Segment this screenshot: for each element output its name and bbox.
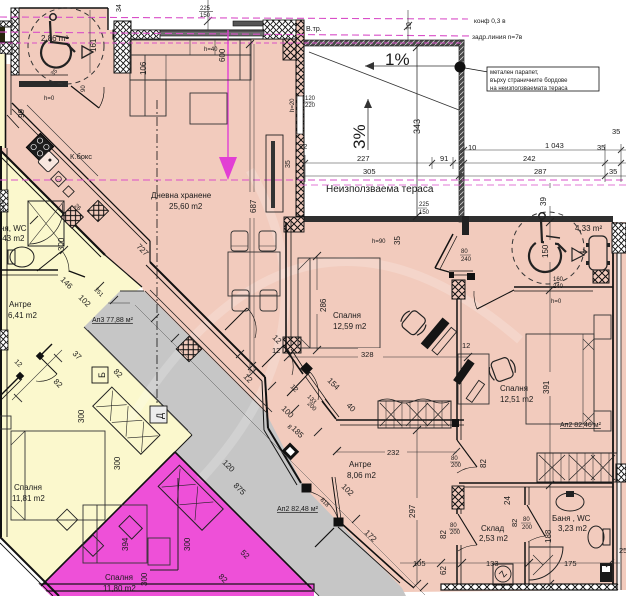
svg-text:Ап2 82,46 м²: Ап2 82,46 м² — [560, 422, 602, 429]
svg-text:175: 175 — [564, 559, 577, 568]
svg-text:Склад: Склад — [481, 524, 504, 533]
svg-text:210: 210 — [0, 200, 6, 212]
svg-text:300: 300 — [183, 537, 192, 551]
svg-text:Д: Д — [155, 413, 165, 419]
svg-text:99: 99 — [17, 109, 26, 118]
svg-text:232: 232 — [387, 448, 400, 457]
svg-text:35: 35 — [285, 160, 292, 168]
svg-text:80: 80 — [450, 523, 457, 529]
svg-text:150: 150 — [541, 244, 550, 258]
svg-text:242: 242 — [523, 154, 536, 163]
svg-text:188: 188 — [544, 529, 553, 543]
svg-text:82: 82 — [439, 530, 448, 539]
svg-text:8,06 m2: 8,06 m2 — [347, 471, 376, 480]
svg-text:К.бокс: К.бокс — [70, 152, 92, 161]
svg-text:687: 687 — [249, 199, 258, 213]
svg-text:200: 200 — [522, 525, 533, 531]
svg-text:82: 82 — [510, 519, 519, 527]
svg-text:161: 161 — [89, 38, 98, 52]
svg-text:240: 240 — [461, 257, 472, 263]
svg-text:10: 10 — [468, 143, 476, 152]
svg-text:Антре: Антре — [9, 300, 32, 309]
svg-text:35: 35 — [597, 143, 605, 152]
svg-text:300: 300 — [140, 572, 149, 586]
svg-text:80: 80 — [451, 456, 458, 462]
svg-text:1%: 1% — [385, 50, 410, 69]
svg-text:300: 300 — [113, 456, 122, 470]
svg-text:286: 286 — [319, 298, 328, 312]
svg-text:35: 35 — [612, 127, 620, 136]
svg-text:Ап2 82,48 м²: Ап2 82,48 м² — [277, 506, 319, 513]
svg-text:34: 34 — [116, 4, 123, 12]
svg-text:h=90: h=90 — [372, 239, 386, 245]
svg-text:,43 m2: ,43 m2 — [0, 234, 25, 243]
svg-text:160: 160 — [553, 277, 564, 283]
svg-text:Неизползваема тераса: Неизползваема тераса — [326, 184, 434, 195]
svg-text:Антре: Антре — [349, 460, 372, 469]
svg-text:25: 25 — [619, 546, 626, 555]
svg-text:4,33 m²: 4,33 m² — [575, 224, 602, 233]
svg-text:200: 200 — [450, 530, 461, 536]
svg-text:394: 394 — [121, 537, 130, 551]
svg-text:задр.линия n=7в: задр.линия n=7в — [472, 34, 523, 41]
svg-text:90: 90 — [81, 85, 87, 92]
svg-text:3,23 m2: 3,23 m2 — [558, 524, 587, 533]
svg-text:Ап3 77,88 м²: Ап3 77,88 м² — [92, 317, 134, 324]
svg-text:297: 297 — [408, 504, 417, 518]
svg-text:25,60 m2: 25,60 m2 — [169, 202, 203, 211]
svg-text:300: 300 — [77, 409, 86, 423]
svg-text:24: 24 — [503, 496, 512, 505]
svg-text:39: 39 — [539, 197, 548, 206]
svg-text:Баня , WC: Баня , WC — [552, 514, 591, 523]
svg-text:Дневна хранене: Дневна хранене — [151, 191, 212, 200]
svg-text:12,59 m2: 12,59 m2 — [333, 322, 367, 331]
svg-text:Б: Б — [97, 372, 107, 378]
svg-text:22: 22 — [299, 142, 307, 151]
svg-text:2,53 m2: 2,53 m2 — [479, 534, 508, 543]
svg-text:на неизползваемата тераса: на неизползваемата тераса — [490, 86, 568, 92]
svg-text:Спалня: Спалня — [105, 573, 133, 582]
svg-text:91: 91 — [440, 154, 448, 163]
svg-text:12: 12 — [462, 341, 470, 350]
svg-text:227: 227 — [357, 154, 370, 163]
svg-text:80: 80 — [461, 249, 468, 255]
svg-text:6,41 m2: 6,41 m2 — [8, 311, 37, 320]
svg-text:конф 0,3 в: конф 0,3 в — [474, 18, 506, 25]
svg-text:1 043: 1 043 — [545, 141, 564, 150]
svg-text:h=0: h=0 — [44, 96, 55, 102]
svg-text:305: 305 — [363, 167, 376, 176]
svg-text:62: 62 — [439, 566, 448, 575]
svg-text:В.тр.: В.тр. — [306, 26, 322, 33]
svg-text:h=20: h=20 — [290, 98, 296, 112]
svg-text:391: 391 — [542, 380, 551, 394]
svg-text:220: 220 — [305, 103, 316, 109]
svg-text:150: 150 — [200, 13, 211, 19]
svg-text:240: 240 — [553, 284, 564, 290]
svg-text:ня, WC: ня, WC — [0, 224, 27, 233]
svg-text:80: 80 — [523, 517, 530, 523]
svg-text:3%: 3% — [350, 124, 369, 149]
svg-text:200: 200 — [451, 463, 462, 469]
svg-text:Спалня: Спалня — [14, 483, 42, 492]
svg-text:120: 120 — [305, 96, 316, 102]
svg-text:35: 35 — [609, 167, 617, 176]
svg-text:h=40: h=40 — [204, 47, 218, 53]
svg-text:328: 328 — [361, 350, 374, 359]
svg-text:225: 225 — [419, 202, 430, 208]
svg-text:11,81 m2: 11,81 m2 — [12, 494, 45, 503]
svg-text:287: 287 — [534, 167, 547, 176]
svg-text:10: 10 — [406, 22, 413, 30]
svg-text:11,80 m2: 11,80 m2 — [103, 584, 136, 593]
svg-text:Спалня: Спалня — [333, 311, 361, 320]
svg-text:Спалня: Спалня — [500, 384, 528, 393]
svg-text:35: 35 — [393, 236, 402, 245]
svg-text:82: 82 — [479, 459, 488, 468]
svg-text:върху страничните бордове: върху страничните бордове — [490, 78, 568, 84]
svg-text:метален парапет,: метален парапет, — [490, 70, 539, 76]
svg-text:225: 225 — [200, 6, 211, 12]
svg-text:343: 343 — [412, 119, 422, 134]
svg-text:12,51 m2: 12,51 m2 — [500, 395, 534, 404]
svg-text:106: 106 — [139, 61, 148, 75]
svg-text:133: 133 — [486, 559, 499, 568]
svg-text:h=0: h=0 — [551, 299, 562, 305]
